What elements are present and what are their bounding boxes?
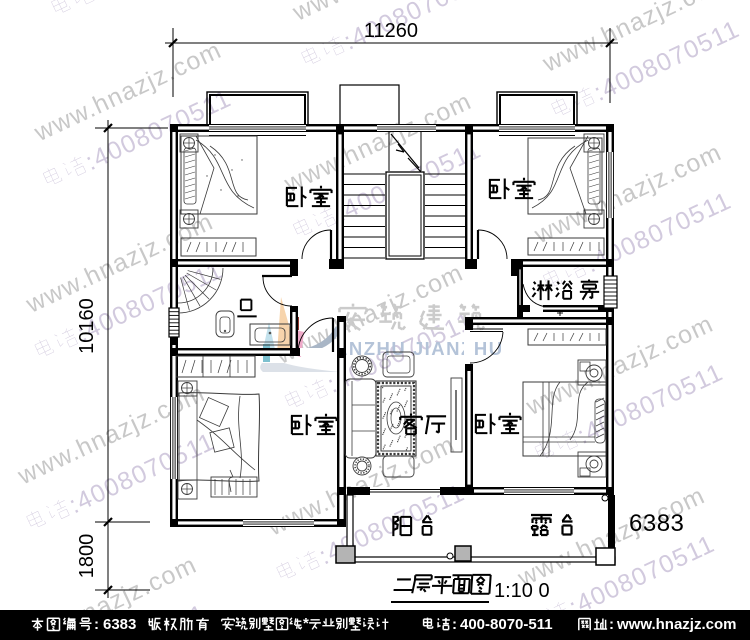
svg-text:10160: 10160: [76, 298, 98, 354]
svg-text:400-8070-511: 400-8070-511: [460, 616, 553, 633]
svg-text::: :: [609, 616, 614, 633]
svg-text:www.hnazjz.com: www.hnazjz.com: [616, 616, 736, 633]
svg-text:1800: 1800: [76, 534, 98, 579]
svg-text:1:10 0: 1:10 0: [494, 580, 550, 602]
svg-text::: :: [94, 616, 99, 633]
svg-text:6383: 6383: [629, 510, 684, 537]
svg-text:ANZHU JIANZHU: ANZHU JIANZHU: [334, 338, 504, 359]
svg-text:11260: 11260: [364, 20, 418, 42]
svg-text:6383: 6383: [103, 616, 136, 633]
svg-text::: :: [452, 616, 457, 633]
svg-text:*: *: [303, 615, 309, 632]
